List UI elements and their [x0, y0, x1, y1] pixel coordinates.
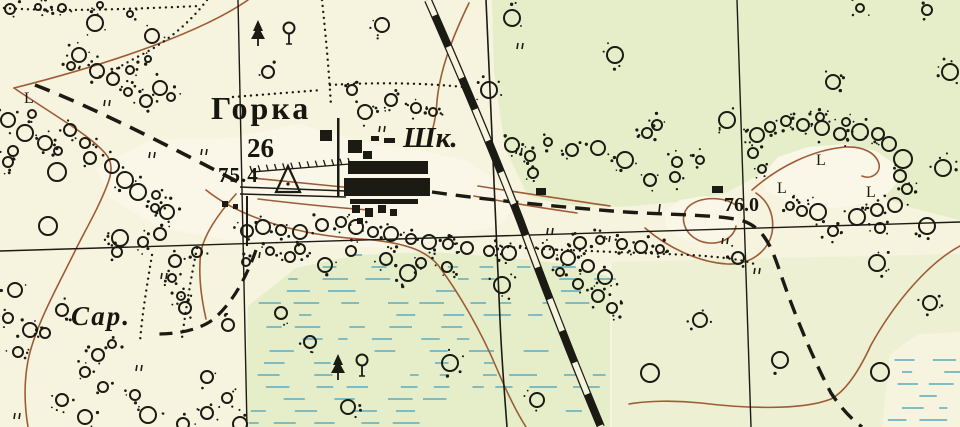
svg-text:L: L	[816, 152, 826, 169]
svg-text:L: L	[866, 184, 876, 201]
label-school: Шк.	[403, 124, 458, 153]
map-canvas: LLLL	[0, 0, 960, 427]
svg-text:L: L	[777, 180, 787, 197]
label-elevation-75-4: 75.4	[218, 165, 259, 186]
label-household-count: 26	[247, 135, 274, 162]
svg-text:L: L	[24, 90, 34, 107]
map-viewport: LLLL Горка 26 75.4 Шк. 76.0 Сар.	[0, 0, 960, 427]
label-barn: Сар.	[71, 303, 131, 330]
label-village-gorka: Горка	[211, 92, 311, 124]
label-spot-height-76-0: 76.0	[724, 195, 759, 215]
